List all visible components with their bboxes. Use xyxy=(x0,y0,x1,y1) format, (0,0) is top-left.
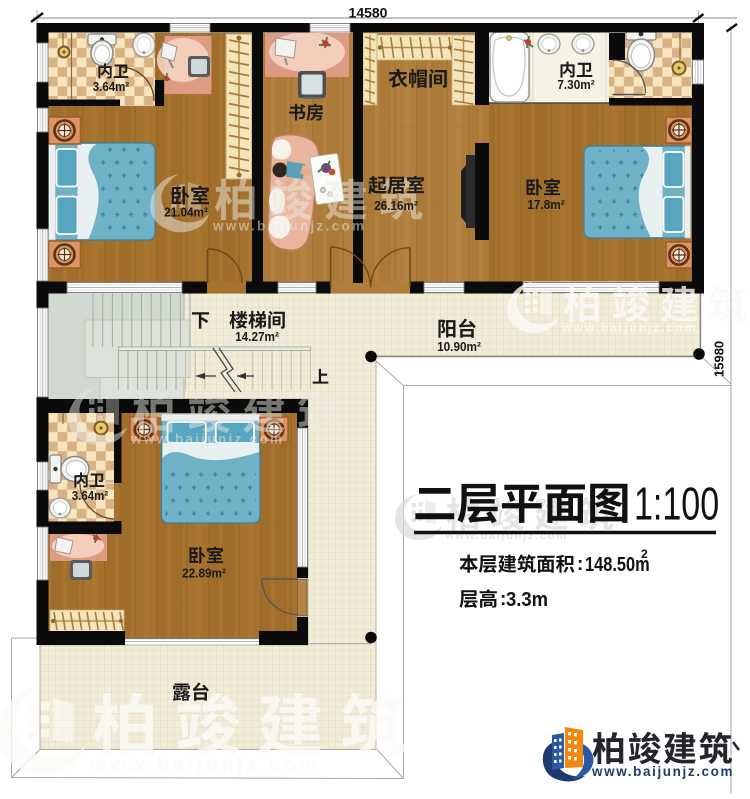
svg-text:22.89m²: 22.89m² xyxy=(182,566,226,581)
svg-text:3.64m²: 3.64m² xyxy=(72,489,108,504)
svg-text:3.64m²: 3.64m² xyxy=(93,80,129,95)
svg-text:14.27m²: 14.27m² xyxy=(235,330,279,345)
svg-text:www.baijunjz.com: www.baijunjz.com xyxy=(212,219,366,234)
svg-text:17.8m²: 17.8m² xyxy=(527,198,564,213)
svg-text:1:100: 1:100 xyxy=(634,477,719,529)
svg-text:15980: 15980 xyxy=(712,341,727,377)
svg-text:www.baijunjz.com: www.baijunjz.com xyxy=(591,764,734,779)
svg-text:www.baijunjz.com: www.baijunjz.com xyxy=(130,432,284,447)
svg-text:www.baijunjz.com: www.baijunjz.com xyxy=(561,320,697,334)
svg-text:3.3m: 3.3m xyxy=(506,588,548,611)
svg-text:148.50m: 148.50m xyxy=(585,552,650,575)
svg-text:www.baijunjz.com: www.baijunjz.com xyxy=(90,754,321,776)
svg-text:26.16m²: 26.16m² xyxy=(374,199,418,214)
svg-text:14580: 14580 xyxy=(349,5,388,21)
svg-text:2: 2 xyxy=(641,547,648,561)
svg-text:21.04m²: 21.04m² xyxy=(164,205,208,220)
svg-text:7.30m²: 7.30m² xyxy=(557,78,594,93)
svg-text::: : xyxy=(577,554,583,575)
svg-text:10.90m²: 10.90m² xyxy=(437,340,481,355)
